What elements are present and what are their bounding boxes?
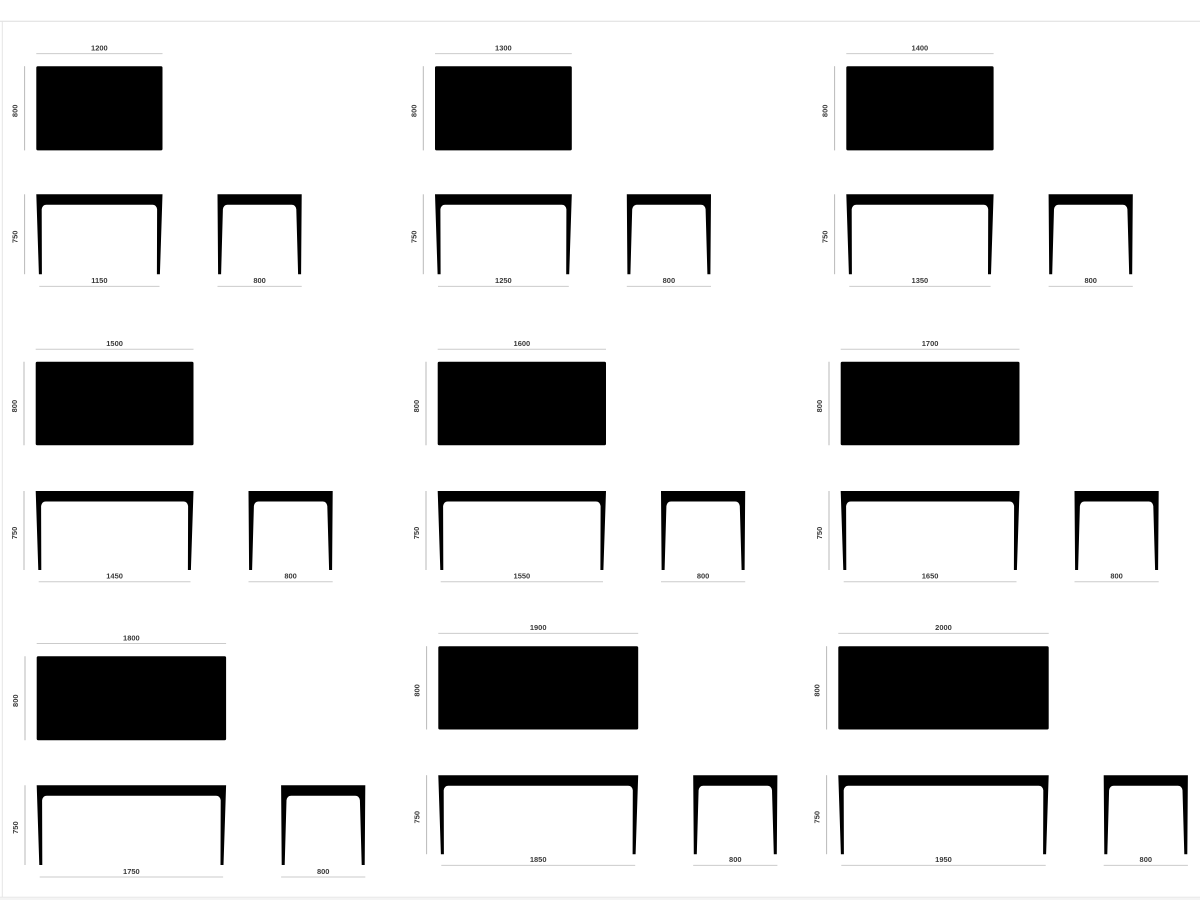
svg-text:1400: 1400 [912, 43, 929, 52]
svg-text:1900: 1900 [530, 623, 547, 632]
svg-text:1250: 1250 [495, 276, 512, 285]
svg-text:800: 800 [11, 105, 20, 118]
svg-text:750: 750 [11, 821, 20, 834]
svg-text:1600: 1600 [514, 339, 531, 348]
svg-text:800: 800 [413, 684, 422, 697]
svg-text:1950: 1950 [935, 855, 952, 864]
svg-text:800: 800 [1084, 276, 1097, 285]
svg-text:750: 750 [10, 527, 19, 540]
svg-text:1450: 1450 [106, 572, 123, 581]
svg-text:800: 800 [1140, 855, 1153, 864]
svg-text:2000: 2000 [935, 623, 952, 632]
svg-text:800: 800 [253, 276, 266, 285]
svg-text:800: 800 [697, 572, 710, 581]
svg-text:800: 800 [815, 400, 824, 413]
svg-text:1850: 1850 [530, 855, 547, 864]
svg-text:800: 800 [412, 400, 421, 413]
svg-text:750: 750 [413, 811, 422, 824]
svg-text:1750: 1750 [123, 867, 140, 876]
svg-text:800: 800 [813, 684, 822, 697]
svg-text:1200: 1200 [91, 43, 108, 52]
svg-text:1700: 1700 [922, 339, 939, 348]
svg-text:800: 800 [729, 855, 742, 864]
svg-text:1550: 1550 [514, 572, 531, 581]
svg-text:800: 800 [663, 276, 676, 285]
svg-text:750: 750 [412, 527, 421, 540]
svg-text:1150: 1150 [91, 276, 107, 285]
svg-text:800: 800 [11, 694, 20, 707]
svg-text:1300: 1300 [495, 43, 512, 52]
svg-text:750: 750 [821, 231, 830, 244]
svg-text:800: 800 [284, 572, 297, 581]
svg-text:750: 750 [813, 811, 822, 824]
svg-text:1500: 1500 [106, 339, 123, 348]
svg-text:800: 800 [821, 105, 830, 118]
svg-text:800: 800 [317, 867, 330, 876]
svg-text:800: 800 [409, 105, 418, 118]
svg-text:800: 800 [1110, 572, 1123, 581]
svg-text:750: 750 [409, 231, 418, 244]
svg-text:1800: 1800 [123, 633, 140, 642]
svg-text:800: 800 [10, 400, 19, 413]
svg-text:1650: 1650 [922, 572, 939, 581]
svg-text:750: 750 [11, 231, 20, 244]
svg-text:750: 750 [815, 527, 824, 540]
svg-text:1350: 1350 [912, 276, 929, 285]
